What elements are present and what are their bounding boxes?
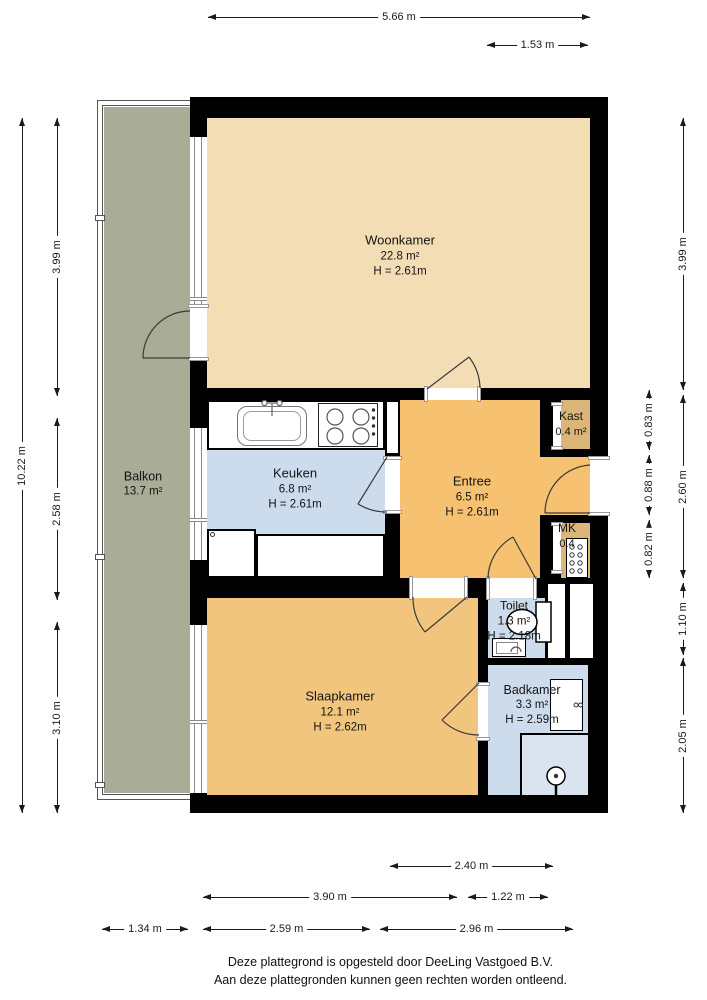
room-area: 13.7 m² [124, 485, 163, 500]
room-name: Slaapkamer [305, 689, 374, 706]
room-label-kast: Kast 0.4 m² [555, 409, 586, 439]
dimension-label: 2.05 m [677, 715, 689, 757]
room-height: H = 2.61m [445, 505, 498, 520]
dimension-right-3: 3.99 m [678, 118, 688, 390]
room-name: Toilet [487, 598, 540, 614]
room-name: Woonkamer [365, 233, 435, 250]
dimension-right-1: 0.88 m [644, 455, 654, 515]
room-area: 6.8 m² [268, 483, 321, 498]
dimension-label: 3.99 m [51, 236, 63, 278]
dimension-label: 2.96 m [456, 923, 498, 935]
dimension-top-1: 1.53 m [487, 40, 588, 50]
fridge-block [207, 529, 256, 578]
kitchen-sink-basin [243, 411, 301, 441]
footer-disclaimer: Deze plattegrond is opgesteld door DeeLi… [68, 954, 707, 989]
dimension-left-3: 3.10 m [52, 622, 62, 813]
toilet-hand-basin-inner [496, 642, 518, 654]
dimension-label: 2.40 m [451, 860, 493, 872]
dimension-label: 3.90 m [309, 891, 351, 903]
dimension-right-4: 2.60 m [678, 395, 688, 578]
room-name: Entree [445, 474, 498, 491]
room-name: MK [558, 521, 576, 537]
dimension-top-0: 5.66 m [208, 12, 590, 22]
shaft-2 [570, 584, 593, 658]
room-label-mk: MK 0.4 [558, 521, 576, 551]
shaft-1 [548, 584, 565, 658]
room-name: Badkamer [504, 682, 561, 698]
room-area: 22.8 m² [365, 250, 435, 265]
door-opening-slaapkamer [410, 578, 467, 598]
room-label-entree: Entree 6.5 m² H = 2.61m [445, 474, 498, 521]
dimension-bottom-2: 1.22 m [468, 892, 548, 902]
dimension-label: 0.82 m [643, 528, 655, 570]
room-label-balkon: Balkon 13.7 m² [124, 468, 163, 499]
floorplan-canvas: Woonkamer 22.8 m² H = 2.61m Keuken 6.8 m… [0, 0, 707, 1000]
door-opening-badkamer [478, 683, 488, 740]
room-floor-entree-doorzone [540, 457, 590, 515]
door-opening-toilet [487, 578, 536, 598]
dimension-label: 1.10 m [677, 598, 689, 640]
room-height: H = 2.59m [504, 713, 561, 728]
room-height: H = 2.62m [305, 720, 374, 735]
footer-line-2: Aan deze plattegronden kunnen geen recht… [68, 972, 707, 990]
dimension-right-5: 1.10 m [678, 583, 688, 655]
room-area: 6.5 m² [445, 491, 498, 506]
door-opening-balcony [190, 305, 207, 360]
dimension-right-0: 0.83 m [644, 390, 654, 450]
dimension-label: 2.60 m [677, 466, 689, 508]
room-height: H = 2.18m [487, 629, 540, 644]
dimension-bottom-4: 2.59 m [203, 924, 370, 934]
dimension-label: 10.22 m [16, 442, 28, 490]
window-woonkamer [190, 137, 207, 305]
dimension-label: 1.53 m [517, 39, 559, 51]
room-height: H = 2.61m [268, 497, 321, 512]
dimension-label: 1.34 m [124, 923, 166, 935]
dimension-left-2: 2.58 m [52, 418, 62, 600]
dimension-label: 2.59 m [266, 923, 308, 935]
room-area: 0.4 [558, 537, 576, 551]
room-name: Keuken [268, 466, 321, 483]
dimension-label: 0.88 m [643, 464, 655, 506]
shower-area [520, 733, 588, 795]
room-name: Kast [555, 409, 586, 425]
dimension-left-0: 10.22 m [17, 118, 27, 813]
room-area: 3.3 m² [504, 698, 561, 713]
room-label-slaapkamer: Slaapkamer 12.1 m² H = 2.62m [305, 689, 374, 736]
room-label-woonkamer: Woonkamer 22.8 m² H = 2.61m [365, 233, 435, 280]
window-keuken [190, 428, 207, 560]
dimension-label: 5.66 m [378, 11, 420, 23]
room-area: 1.3 m² [487, 614, 540, 629]
door-opening-front-entry [590, 457, 608, 515]
room-height: H = 2.61m [365, 264, 435, 279]
dimension-bottom-3: 1.34 m [102, 924, 188, 934]
railing-tick [95, 554, 105, 560]
railing-tick [95, 782, 105, 788]
door-opening-keuken [385, 457, 400, 513]
room-floor-balkon [104, 107, 190, 793]
railing-tick [95, 215, 105, 221]
dimension-bottom-1: 3.90 m [203, 892, 457, 902]
stove [318, 403, 378, 447]
room-label-badkamer: Badkamer 3.3 m² H = 2.59m [504, 682, 561, 728]
room-label-keuken: Keuken 6.8 m² H = 2.61m [268, 466, 321, 513]
dimension-label: 1.22 m [487, 891, 529, 903]
fridge-hinge-dot [210, 532, 215, 537]
room-label-toilet: Toilet 1.3 m² H = 2.18m [487, 598, 540, 643]
dimension-label: 3.99 m [677, 233, 689, 275]
dimension-right-6: 2.05 m [678, 658, 688, 813]
dimension-label: 3.10 m [51, 697, 63, 739]
wall-cabinet-block [385, 400, 400, 455]
dimension-label: 0.83 m [643, 399, 655, 441]
room-name: Balkon [124, 468, 163, 484]
footer-line-1: Deze plattegrond is opgesteld door DeeLi… [68, 954, 707, 972]
window-slaapkamer [190, 625, 207, 793]
dimension-left-1: 3.99 m [52, 118, 62, 396]
room-area: 12.1 m² [305, 706, 374, 721]
dimension-label: 2.58 m [51, 488, 63, 530]
dimension-bottom-0: 2.40 m [390, 861, 553, 871]
dimension-right-2: 0.82 m [644, 520, 654, 578]
room-area: 0.4 m² [555, 425, 586, 439]
kitchen-lower-counter [256, 534, 385, 578]
door-opening-woonkamer [425, 388, 480, 400]
dimension-bottom-5: 2.96 m [380, 924, 573, 934]
